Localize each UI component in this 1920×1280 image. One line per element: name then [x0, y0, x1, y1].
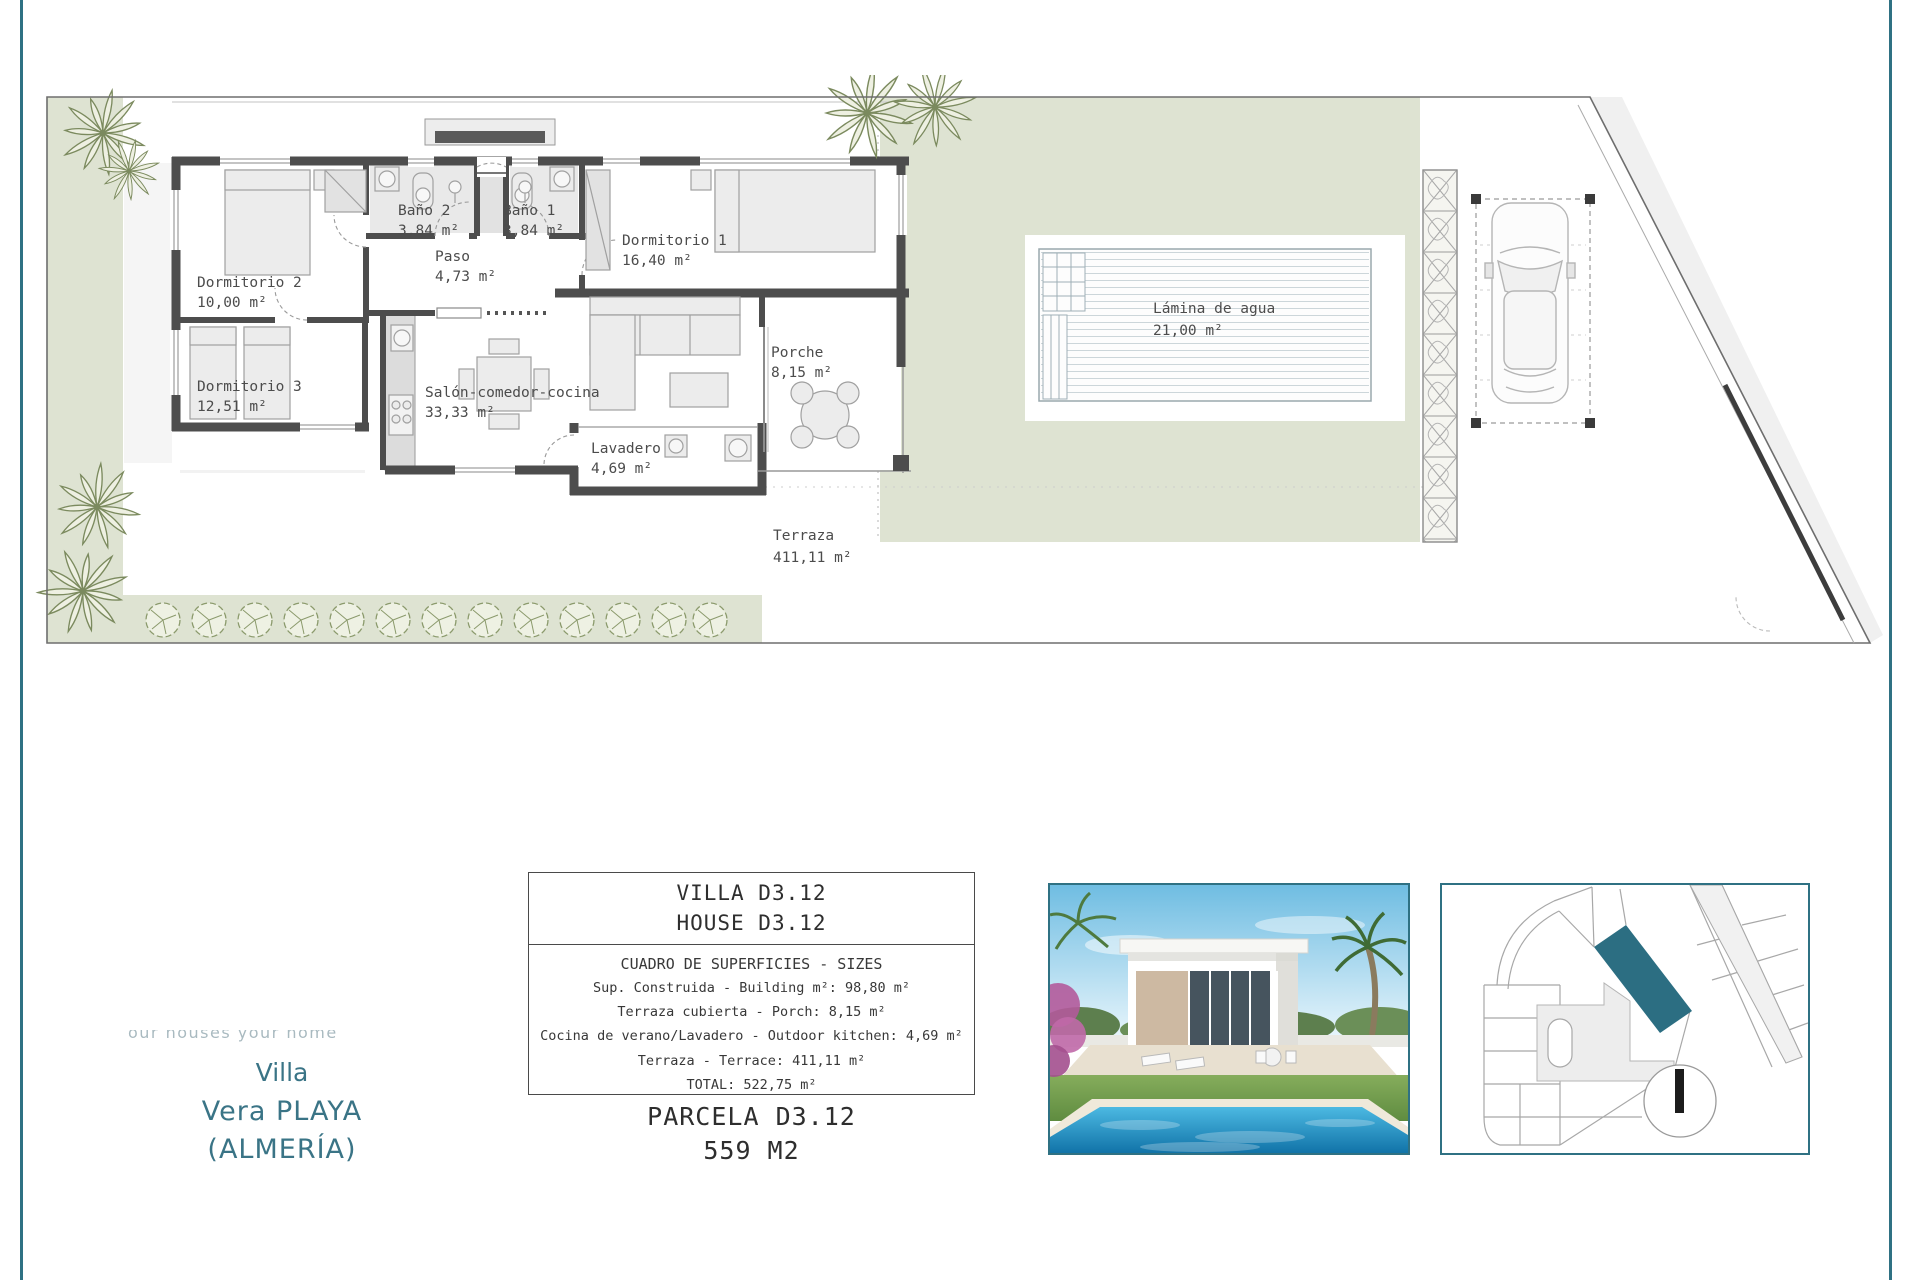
villa-render-photo	[1048, 883, 1410, 1155]
svg-text:8,15 m²: 8,15 m²	[771, 365, 832, 381]
location-map	[1440, 883, 1810, 1155]
entry-canopy	[435, 131, 545, 143]
size-row-building: Sup. Construida - Building m²: 98,80 m²	[529, 976, 974, 1000]
info-box-sizes: CUADRO DE SUPERFICIES - SIZES Sup. Const…	[529, 945, 974, 1097]
size-row-terrace: Terraza - Terrace: 411,11 m²	[529, 1049, 974, 1073]
svg-text:4,69 m²: 4,69 m²	[591, 461, 652, 477]
brand-block: our houses your home Villa Vera PLAYA (A…	[123, 1030, 441, 1165]
room-label-dormitorio3: Dormitorio 3	[197, 379, 302, 395]
brand-tagline: our houses your home	[123, 1030, 441, 1042]
brand-line-province: (ALMERÍA)	[123, 1134, 441, 1165]
house-render	[1120, 939, 1308, 1045]
location-map-drawing	[1442, 885, 1808, 1153]
room-label-lavadero: Lavadero	[591, 441, 661, 457]
room-label-bano1: Baño 1	[503, 203, 555, 219]
brand-line-location: Vera PLAYA	[123, 1096, 441, 1127]
house-title: HOUSE D3.12	[529, 908, 974, 938]
left-border-line	[20, 0, 23, 1280]
gabion-wall	[1423, 170, 1457, 542]
svg-text:12,51 m²: 12,51 m²	[197, 399, 267, 415]
room-label-paso: Paso	[435, 249, 470, 265]
svg-text:10,00 m²: 10,00 m²	[197, 295, 267, 311]
room-label-terraza: Terraza	[773, 528, 834, 544]
svg-text:411,11 m²: 411,11 m²	[773, 550, 852, 566]
sizes-heading: CUADRO DE SUPERFICIES - SIZES	[529, 952, 974, 976]
site-plan: Lámina de agua 21,00 m²	[25, 75, 1895, 645]
svg-text:3,84 m²: 3,84 m²	[398, 223, 459, 239]
pool-label-area: 21,00 m²	[1153, 323, 1223, 339]
size-row-porch: Terraza cubierta - Porch: 8,15 m²	[529, 1000, 974, 1024]
car	[1485, 203, 1575, 403]
brand-line-villa: Villa	[123, 1058, 441, 1087]
room-label-porche: Porche	[771, 345, 823, 361]
villa-title: VILLA D3.12	[529, 878, 974, 908]
info-box-titles: VILLA D3.12 HOUSE D3.12	[529, 873, 974, 945]
villa-render-drawing	[1050, 885, 1408, 1153]
size-row-outdoor-kitchen: Cocina de verano/Lavadero - Outdoor kitc…	[529, 1024, 974, 1048]
room-label-bano2: Baño 2	[398, 203, 450, 219]
plan-sheet: Lámina de agua 21,00 m²	[0, 0, 1920, 1280]
site-plan-drawing: Lámina de agua 21,00 m²	[25, 75, 1895, 645]
room-label-dormitorio2: Dormitorio 2	[197, 275, 302, 291]
svg-text:4,73 m²: 4,73 m²	[435, 269, 496, 285]
size-row-total: TOTAL: 522,75 m²	[529, 1073, 974, 1097]
room-label-salon: Salón-comedor-cocina	[425, 385, 600, 401]
pool-label-name: Lámina de agua	[1153, 301, 1275, 317]
svg-text:3,84 m²: 3,84 m²	[503, 223, 564, 239]
room-label-dormitorio1: Dormitorio 1	[622, 233, 727, 249]
map-pool-shape	[1548, 1019, 1572, 1067]
svg-text:33,33 m²: 33,33 m²	[425, 405, 495, 421]
map-compass	[1644, 1065, 1716, 1137]
svg-text:16,40 m²: 16,40 m²	[622, 253, 692, 269]
parcel-title: PARCELA D3.12	[528, 1102, 975, 1131]
surface-info-box: VILLA D3.12 HOUSE D3.12 CUADRO DE SUPERF…	[528, 872, 975, 1095]
sliding-door	[437, 308, 481, 318]
shadow	[124, 163, 172, 463]
stone-wall	[1136, 971, 1188, 1045]
parcel-size: 559 M2	[528, 1136, 975, 1165]
pool: Lámina de agua 21,00 m²	[1025, 235, 1405, 421]
